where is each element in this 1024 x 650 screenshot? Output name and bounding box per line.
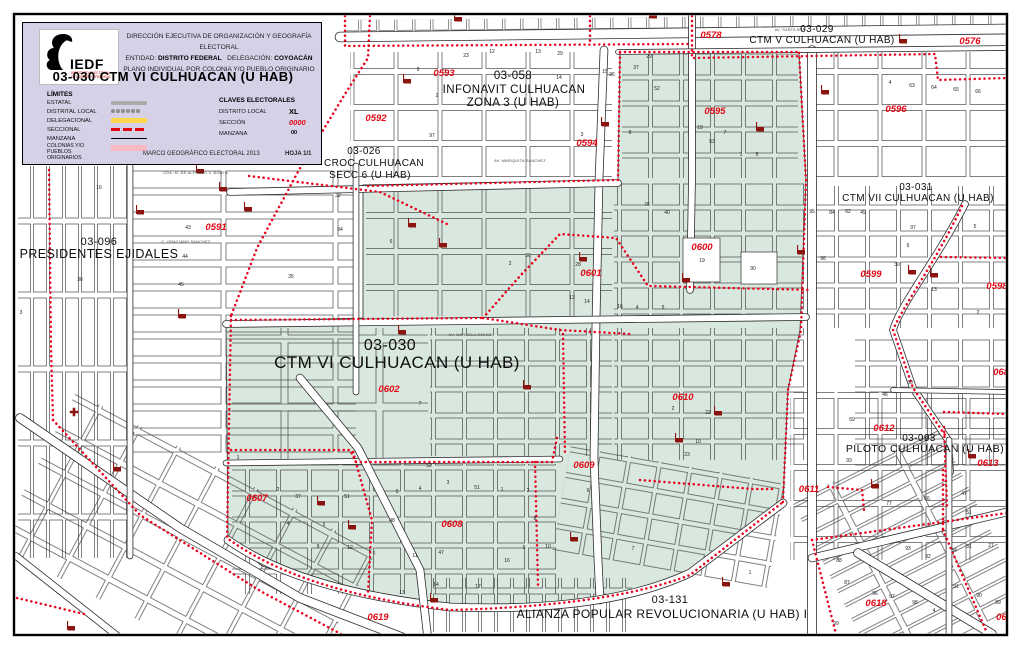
colonia-label: 03-029 bbox=[800, 24, 834, 35]
manzana-number: 98 bbox=[912, 600, 918, 606]
street-name: AV. MARIQUITA SANCHEZ bbox=[494, 159, 546, 163]
manzana-number: 7 bbox=[419, 401, 422, 407]
limite-colonias: COLONIAS Y/O PUEBLOS ORIGINARIOS bbox=[47, 144, 107, 161]
manzana-number: 13 bbox=[569, 295, 575, 301]
colonia-label: CTM VI CULHUACAN (U HAB) bbox=[274, 353, 520, 372]
colonia-label: SECC 6 (U HAB) bbox=[329, 170, 411, 181]
manzana-number: 13 bbox=[931, 287, 937, 293]
block-grid-zone bbox=[815, 52, 1007, 178]
manzana-number: 96 bbox=[872, 591, 878, 597]
clave-manzana-label: MANZANA bbox=[219, 131, 247, 137]
manzana-number: 63 bbox=[909, 83, 915, 89]
manzana-number: 2 bbox=[527, 488, 530, 494]
manzana-number: 23 bbox=[684, 452, 690, 458]
manzana-number: 16 bbox=[96, 185, 102, 191]
manzana-number: 5 bbox=[974, 224, 977, 230]
manzana-number: 87 bbox=[844, 580, 850, 586]
manzana-number: 35 bbox=[288, 274, 294, 280]
limite-manzana: MANZANA bbox=[47, 136, 75, 142]
colonia-label: PILOTO CULHUACAN (U HAB) bbox=[846, 443, 1004, 455]
seccion-number: 0618 bbox=[865, 598, 887, 609]
manzana-number: 2 bbox=[672, 406, 675, 412]
manzana-number: 45 bbox=[178, 282, 184, 288]
seccion-number: 0607 bbox=[246, 493, 268, 504]
colonia-label: 03-031 bbox=[899, 182, 933, 193]
manzana-number: 36 bbox=[525, 253, 531, 259]
cross-icon: ✚ bbox=[69, 407, 78, 419]
manzana-number: 51 bbox=[474, 485, 480, 491]
seccion-number: 0598 bbox=[986, 281, 1008, 292]
seccional-symbol bbox=[111, 128, 147, 131]
manzana-number: 1 bbox=[740, 152, 743, 158]
manzana-number: 51 bbox=[966, 510, 972, 516]
colonia-label: CTM V CULHUACAN (U HAB) bbox=[749, 35, 894, 46]
clave-distrito-value: XL bbox=[289, 107, 299, 116]
manzana-number: 1 bbox=[501, 487, 504, 493]
colonia-label: 03-131 bbox=[652, 594, 689, 606]
manzana-number: 53 bbox=[709, 139, 715, 145]
manzana-number: 5 bbox=[323, 522, 326, 528]
manzana-number: 30 bbox=[894, 262, 900, 268]
manzana-number: 99 bbox=[833, 621, 839, 627]
colonia-label: PRESIDENTES EJIDALES bbox=[20, 247, 179, 261]
manzana-number: 7 bbox=[724, 130, 727, 136]
block-grid-zone bbox=[366, 188, 612, 316]
seccion-number: 0592 bbox=[365, 113, 387, 124]
street-name: CDA. M. DE ALFREDO V. BONFIL bbox=[163, 171, 229, 175]
manzana-number: 65 bbox=[953, 87, 959, 93]
colonia-label: CTM VII CULHUACAN (U HAB) bbox=[842, 193, 994, 204]
seccion-number: 0595 bbox=[704, 106, 726, 117]
manzana-number: 36 bbox=[609, 72, 615, 78]
seccion-number: 0609 bbox=[573, 460, 595, 471]
manzana-number: 95 bbox=[809, 209, 815, 215]
manzana-number: 31 bbox=[966, 544, 972, 550]
marco-geografico-note: MARCO GEOGRÁFICO ELECTORAL 2013 bbox=[143, 151, 260, 157]
seccion-number: 0578 bbox=[700, 30, 722, 41]
manzana-number: 6 bbox=[390, 239, 393, 245]
manzana-number: 6 bbox=[396, 489, 399, 495]
seccion-number: 0610 bbox=[672, 392, 694, 403]
manzana-number: 1 bbox=[237, 455, 240, 461]
manzana-number: 76 bbox=[644, 202, 650, 208]
manzana-number: 19 bbox=[697, 125, 703, 131]
manzana-number: 62 bbox=[845, 209, 851, 215]
street-name: C. GRACIANO SANCHEZ bbox=[161, 240, 210, 244]
seccion-number: 0599 bbox=[860, 269, 882, 280]
manzana-number: 8 bbox=[629, 130, 632, 136]
seccion-number: 0612 bbox=[873, 423, 895, 434]
manzana-number: 5 bbox=[662, 305, 665, 311]
seccion-number: 0608 bbox=[441, 519, 463, 530]
map-title: 03-030 CTM VI CULHUACAN (U HAB) bbox=[23, 69, 323, 84]
entidad-line: ENTIDAD: DISTRITO FEDERAL DELEGACIÓN: CO… bbox=[119, 53, 319, 64]
seccion-number: 0619 bbox=[367, 612, 389, 623]
manzana-number: 88 bbox=[836, 558, 842, 564]
manzana-number: 91 bbox=[953, 584, 959, 590]
manzana-number: 4 bbox=[636, 305, 639, 311]
manzana-number: 4 bbox=[287, 521, 290, 527]
manzana-number: 16 bbox=[504, 558, 510, 564]
manzana-number: 77 bbox=[886, 501, 892, 507]
manzana-number: 93 bbox=[846, 458, 852, 464]
legend-box: IEDF INSTITUTO ELECTORAL DEL DISTRITO FE… bbox=[22, 22, 322, 165]
manzana-number: 92 bbox=[925, 554, 931, 560]
manzana-number: 97 bbox=[889, 594, 895, 600]
manzana-number: 66 bbox=[975, 89, 981, 95]
manzana-number: 4 bbox=[419, 486, 422, 492]
manzana-number: 64 bbox=[931, 85, 937, 91]
colonia-label: 03-058 bbox=[494, 70, 532, 82]
manzana-number: 19 bbox=[699, 258, 705, 264]
manzana-number: 6 bbox=[907, 243, 910, 249]
manzana-number: 8 bbox=[534, 516, 537, 522]
manzana-number: 49 bbox=[860, 210, 866, 216]
manzana-number: 14 bbox=[584, 299, 590, 305]
manzana-number: 34 bbox=[951, 548, 957, 554]
street-name: AV. MANUELA SAENZ bbox=[449, 333, 492, 337]
manzana-number: 2 bbox=[977, 310, 980, 316]
manzana-number: 90 bbox=[976, 593, 982, 599]
manzana-number: 27 bbox=[988, 543, 994, 549]
manzana-number: 30 bbox=[907, 380, 913, 386]
limites-header: LÍMITES bbox=[47, 91, 73, 98]
manzana-number: 46 bbox=[882, 392, 888, 398]
distrital-symbol bbox=[111, 109, 147, 113]
manzana-number: 43 bbox=[185, 225, 191, 231]
manzana-number: 1 bbox=[749, 570, 752, 576]
manzana-number: 9 bbox=[417, 67, 420, 73]
road bbox=[893, 390, 1007, 392]
seccion-number: 0611 bbox=[799, 484, 819, 495]
colonias-symbol bbox=[111, 145, 147, 151]
manzana-number: 32 bbox=[335, 193, 341, 199]
manzana-number: 2 bbox=[277, 487, 280, 493]
map-page: ✚ 91122312132915149737295285315193736463… bbox=[0, 0, 1024, 650]
colonia-label: ZONA 3 (U HAB) bbox=[467, 97, 560, 109]
manzana-number: 47 bbox=[438, 550, 444, 556]
manzana-number: 90 bbox=[750, 266, 756, 272]
manzana-number: 97 bbox=[910, 225, 916, 231]
limite-seccional: SECCIONAL bbox=[47, 127, 81, 133]
manzana-number: 11 bbox=[412, 553, 417, 559]
manzana-number: 14 bbox=[433, 582, 439, 588]
manzana-symbol bbox=[111, 138, 147, 139]
colonia-label: 03-030 bbox=[364, 337, 416, 354]
manzana-number: 89 bbox=[995, 600, 1001, 606]
seccion-number: 0600 bbox=[691, 242, 713, 253]
direccion-line: DIRECCIÓN EJECUTIVA DE ORGANIZACIÓN Y GE… bbox=[119, 31, 319, 53]
block-grid-zone bbox=[430, 328, 612, 456]
manzana-number: 7 bbox=[632, 546, 635, 552]
manzana-number: 56 bbox=[924, 496, 930, 502]
seccion-number: 0602 bbox=[378, 384, 400, 395]
manzana-number: 36 bbox=[77, 277, 83, 283]
manzana-number: 10 bbox=[695, 439, 701, 445]
manzana-number: 22 bbox=[705, 410, 711, 416]
limite-distrital: DISTRITAL LOCAL bbox=[47, 109, 97, 115]
estatal-symbol bbox=[111, 101, 147, 105]
manzana-number: 93 bbox=[905, 546, 911, 552]
manzana-number: 2 bbox=[509, 261, 512, 267]
hoja-number: HOJA 1/1 bbox=[285, 151, 311, 157]
manzana-number: 4 bbox=[889, 80, 892, 86]
manzana-number: 16 bbox=[617, 304, 623, 310]
manzana-number: 3 bbox=[20, 310, 23, 316]
manzana-number: 23 bbox=[463, 53, 469, 59]
clave-seccion-value: 0000 bbox=[289, 118, 306, 127]
manzana-number: 48 bbox=[389, 518, 395, 524]
manzana-number: 97 bbox=[429, 133, 435, 139]
manzana-number: 13 bbox=[399, 590, 405, 596]
block-grid-zone bbox=[815, 186, 1007, 328]
manzana-number: 37 bbox=[633, 65, 639, 71]
manzana-number: 13 bbox=[535, 49, 541, 55]
manzana-number: 3 bbox=[447, 480, 450, 486]
manzana-number: 59 bbox=[849, 417, 855, 423]
manzana-number: 17 bbox=[475, 584, 481, 590]
clave-manzana-value: 00 bbox=[291, 130, 297, 136]
colonia-label: INFONAVIT CULHUACAN bbox=[443, 84, 586, 96]
manzana-number: 4 bbox=[933, 608, 936, 614]
clave-distrito-label: DISTRITO LOCAL bbox=[219, 109, 267, 115]
manzana-number: 9 bbox=[317, 544, 320, 550]
building-block bbox=[741, 252, 777, 284]
manzana-number: 5 bbox=[756, 152, 759, 158]
colonia-label: 03-026 bbox=[347, 146, 381, 157]
manzana-number: 15 bbox=[602, 69, 608, 75]
seccion-number: 0594 bbox=[576, 138, 598, 149]
colonia-label: ALIANZA POPULAR REVOLUCIONARIA (U HAB) I bbox=[517, 607, 808, 621]
seccion-number: 0596 bbox=[885, 104, 907, 115]
manzana-number: 14 bbox=[556, 75, 562, 81]
manzana-number: 37 bbox=[295, 494, 301, 500]
limite-estatal: ESTATAL bbox=[47, 100, 71, 106]
colonia-label: CROC CULHUACAN bbox=[324, 158, 424, 169]
manzana-number: 6 bbox=[587, 488, 590, 494]
limite-delegacional: DELEGACIONAL bbox=[47, 118, 92, 124]
manzana-number: 52 bbox=[654, 86, 660, 92]
manzana-number: 51 bbox=[344, 494, 350, 500]
delegacional-symbol bbox=[111, 118, 147, 123]
manzana-number: 40 bbox=[664, 210, 670, 216]
manzana-number: 12 bbox=[489, 49, 495, 55]
block-grid-zone bbox=[614, 328, 804, 460]
manzana-number: 84 bbox=[829, 210, 835, 216]
manzana-number: 2 bbox=[436, 93, 439, 99]
manzana-number: 34 bbox=[337, 227, 343, 233]
seccion-number: 0576 bbox=[959, 36, 981, 47]
manzana-number: 9 bbox=[523, 545, 526, 551]
manzana-number: 44 bbox=[182, 254, 188, 260]
manzana-number: 47 bbox=[961, 491, 967, 497]
manzana-number: 12 bbox=[347, 545, 353, 551]
seccion-number: 0593 bbox=[433, 68, 455, 79]
manzana-number: 29 bbox=[557, 51, 563, 57]
manzana-number: 52 bbox=[426, 463, 432, 469]
clave-seccion-label: SECCIÓN bbox=[219, 120, 245, 126]
seccion-number: 0613 bbox=[977, 458, 999, 469]
manzana-number: 10 bbox=[545, 544, 551, 550]
seccion-number: 0591 bbox=[205, 222, 226, 233]
manzana-number: 96 bbox=[820, 256, 826, 262]
manzana-number: 29 bbox=[646, 54, 652, 60]
seccion-number: 0601 bbox=[580, 268, 601, 279]
claves-header: CLAVES ELECTORALES bbox=[219, 97, 295, 104]
